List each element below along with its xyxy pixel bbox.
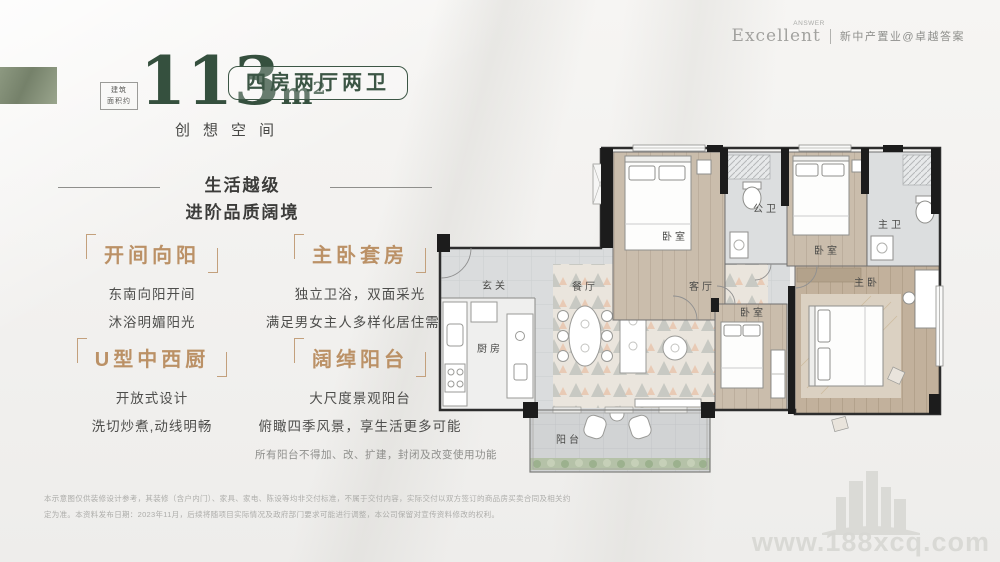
feature-line: 洗切炒煮,动线明畅: [46, 413, 258, 441]
disclaimer-line2: 定为准。本资料发布日期：2023年11月，后续将随项目实际情况及政府部门要求可能…: [44, 507, 571, 523]
slogan-text: 创想空间: [175, 119, 287, 140]
brand-divider: [830, 29, 831, 44]
disclaimer-line1: 本示意图仅供装修设计参考，其装修（含户内门）、家具、家电、陈设等均非交付标准，不…: [44, 491, 571, 507]
bracket-left-icon: [294, 338, 304, 363]
room-label-living: 客厅: [689, 280, 715, 293]
feature-title: 主卧套房: [294, 232, 426, 275]
room-label-master-bedroom: 主卧: [854, 276, 880, 289]
brand: ExcellentANSWER 新中产置业@卓越答案: [732, 26, 965, 46]
feature-line: 东南向阳开间: [46, 281, 258, 309]
room-label-balcony: 阳台: [556, 433, 582, 446]
bracket-right-icon: [416, 248, 426, 273]
bracket-left-icon: [86, 234, 96, 259]
area-tag: 建筑 面积约: [100, 82, 138, 110]
poster-canvas: 建筑 面积约 113m² 四房两厅两卫 创想空间 生活越级 进阶品质阔境 开间向…: [0, 0, 1000, 562]
dining-table: [558, 306, 613, 366]
bracket-left-icon: [77, 338, 87, 363]
building-icon: [816, 469, 926, 535]
feature-title: 开间向阳: [86, 232, 218, 275]
disclaimer: 本示意图仅供装修设计参考，其装修（含户内门）、家具、家电、陈设等均非交付标准，不…: [44, 491, 571, 523]
side-table: [663, 336, 687, 360]
feature-block-open-layout: 开间向阳 东南向阳开间 沐浴明媚阳光: [46, 232, 258, 336]
feature-block-kitchen: U型中西厨 开放式设计 洗切炒煮,动线明畅: [46, 336, 258, 440]
bracket-right-icon: [217, 352, 227, 377]
room-label-kitchen: 厨房: [477, 342, 503, 355]
room-label-master-bath: 主卫: [878, 219, 904, 231]
room-label-public-bath: 公卫: [753, 204, 779, 215]
feature-line: 开放式设计: [46, 385, 258, 413]
feature-title-text: 开间向阳: [104, 245, 200, 267]
room-label-bedroom3: 卧室: [740, 306, 766, 319]
bracket-left-icon: [294, 234, 304, 259]
feature-title: 阔绰阳台: [294, 336, 426, 379]
green-marble-chip: [0, 67, 57, 104]
area-tag-line1: 建筑: [101, 85, 137, 96]
media-console: [635, 399, 701, 407]
feature-body: 东南向阳开间 沐浴明媚阳光: [46, 281, 258, 336]
room-label-bedroom2: 卧室: [814, 244, 840, 257]
layout-type-badge: 四房两厅两卫: [228, 66, 408, 100]
section-title-line2: 进阶品质阔境: [55, 199, 430, 226]
brand-logo-sup: ANSWER: [793, 20, 825, 27]
room-label-entry: 玄关: [482, 279, 508, 292]
area-tag-line2: 面积约: [101, 96, 137, 107]
section-title-line1: 生活越级: [55, 172, 430, 199]
feature-title-text: 阔绰阳台: [312, 349, 408, 371]
feature-title-text: U型中西厨: [95, 349, 209, 371]
room-label-dining: 餐厅: [572, 280, 598, 293]
brand-logo-text: Excellent: [732, 26, 821, 46]
watermark: www.188xcq.com: [752, 469, 990, 558]
bracket-right-icon: [208, 248, 218, 273]
feature-body: 开放式设计 洗切炒煮,动线明畅: [46, 385, 258, 440]
room-label-bedroom1: 卧室: [662, 230, 688, 243]
brand-tagline: 新中产置业@卓越答案: [840, 28, 965, 44]
feature-title-text: 主卧套房: [312, 245, 408, 267]
section-title: 生活越级 进阶品质阔境: [55, 172, 430, 226]
feature-line: 沐浴明媚阳光: [46, 309, 258, 337]
feature-title: U型中西厨: [77, 336, 227, 379]
bracket-right-icon: [416, 352, 426, 377]
floor-plan: 卧室 公卫 卧室 主卫 玄关 餐厅 客厅 厨房 卧室 主卧 阳台: [435, 136, 945, 486]
brand-logo: ExcellentANSWER: [732, 26, 821, 46]
